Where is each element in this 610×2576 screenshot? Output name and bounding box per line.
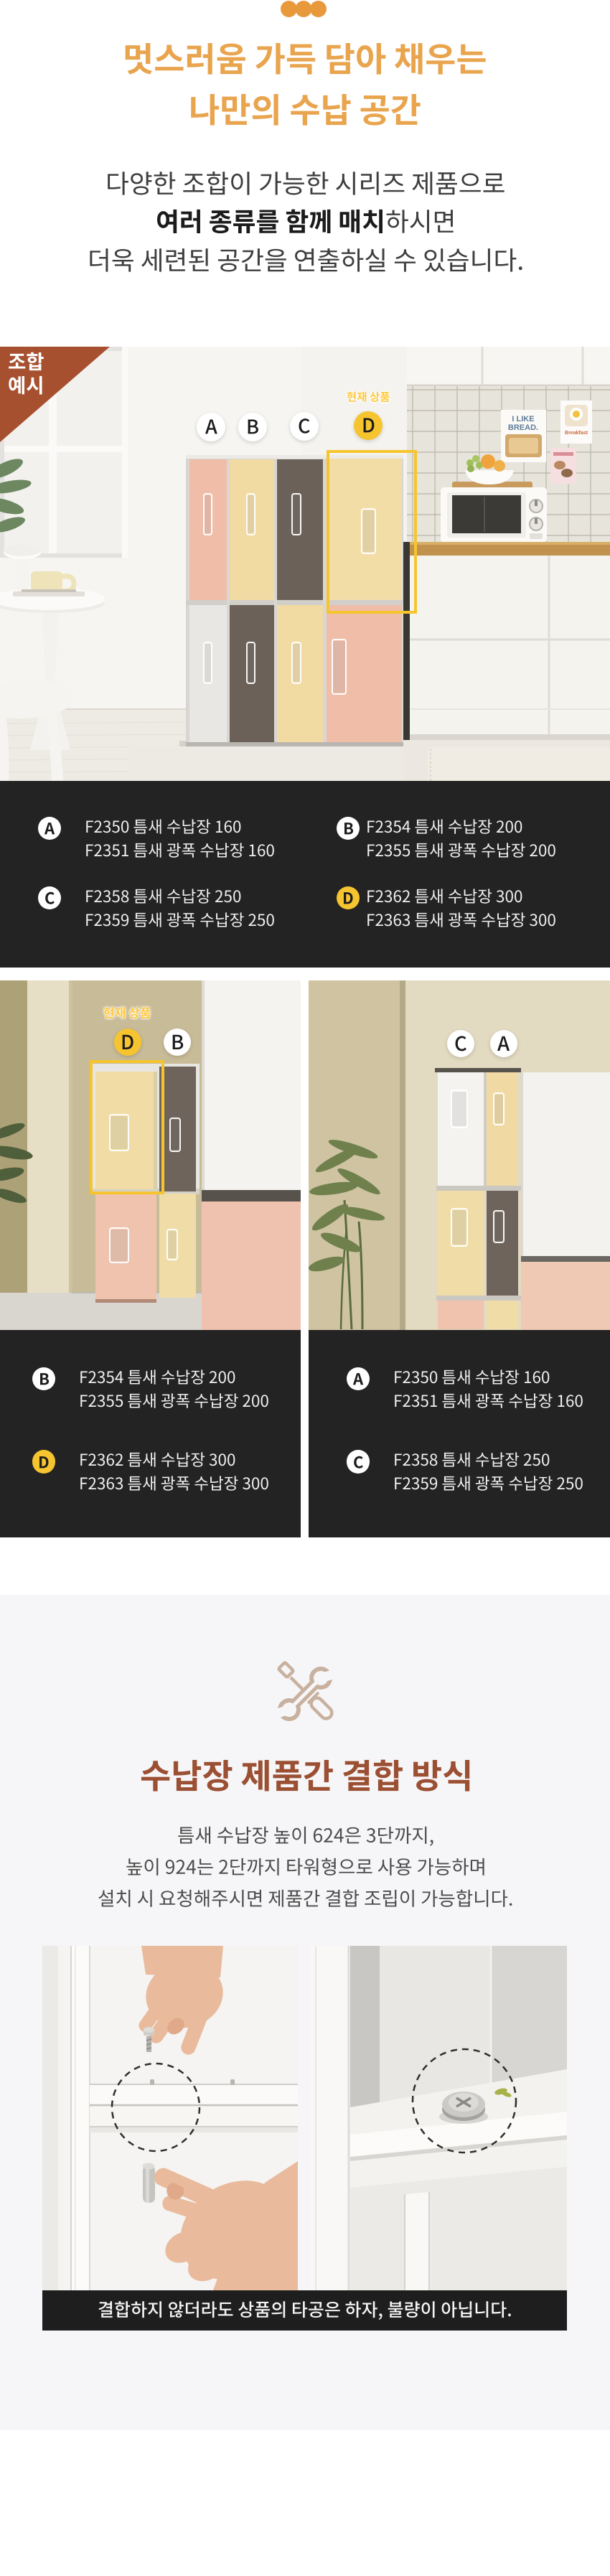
svg-text:Breakfast: Breakfast bbox=[565, 431, 588, 436]
svg-text:I LIKE: I LIKE bbox=[512, 415, 534, 423]
svg-text:BREAD.: BREAD. bbox=[508, 423, 538, 432]
